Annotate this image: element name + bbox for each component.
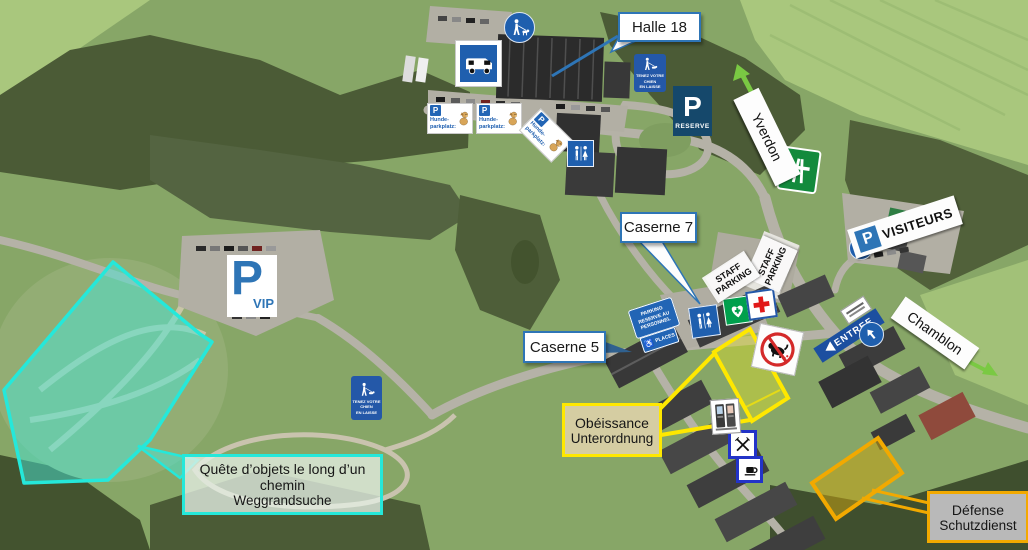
first-aid-sign (745, 288, 778, 321)
up-arrow-icon (860, 323, 884, 347)
dog-cartoon-icon (507, 105, 519, 132)
label-quete-dobjets: Quête d’objets le long d’un chemin Weggr… (182, 454, 383, 515)
callout-halle-18: Halle 18 (618, 12, 701, 42)
wc-sign-2 (688, 304, 721, 339)
restaurant-sign (728, 430, 757, 459)
coffee-cup-icon (741, 461, 759, 479)
callout-caserne-7: Caserne 7 (620, 212, 697, 243)
parking-reserve-sign: P RESERVE (673, 86, 712, 136)
vending-machine-icon (712, 400, 739, 433)
parking-vip-sign: P VIP (227, 255, 277, 317)
quete-area-highlight (4, 262, 212, 483)
map-annotations (0, 0, 1028, 550)
hundeparkplatz-sign-2: P Hunde-parkplatz: (476, 103, 522, 134)
dog-cartoon-icon (458, 105, 470, 132)
person-with-dog-icon (509, 17, 531, 39)
left-arrow-icon (822, 341, 836, 355)
caserne7-leader (636, 238, 700, 304)
toilets-icon (693, 310, 717, 334)
halle18-leader (552, 36, 618, 76)
vending-machines-sign (710, 398, 741, 435)
label-defense: Défense Schutzdienst (927, 491, 1028, 543)
parking-p-icon: P (479, 105, 490, 116)
camper-parking-sign (455, 40, 502, 87)
cafe-sign (736, 456, 763, 483)
no-dog-fouling-icon (753, 325, 802, 374)
parking-p-icon: P (430, 105, 441, 116)
person-with-dog-icon (358, 381, 376, 399)
event-site-map: P Hunde-parkplatz: P Hunde-parkplatz: P … (0, 0, 1028, 550)
dog-walking-roundel-sign (504, 12, 535, 43)
no-dog-fouling-sign (751, 323, 804, 376)
fork-knife-icon (733, 435, 752, 454)
toilets-icon (571, 144, 591, 164)
wheelchair-icon: ♿ (643, 338, 655, 350)
label-obeissance: Obéissance Unterordnung (562, 403, 662, 457)
wc-sign-1 (567, 140, 594, 167)
red-cross-icon (751, 294, 772, 315)
leash-sign-2: TENEZ VOTRE CHIENEN LAISSE (351, 376, 382, 420)
parking-p-icon: P (854, 225, 882, 253)
camper-van-icon (463, 51, 495, 77)
leash-sign-1: TENEZ VOTRE CHIENEN LAISSE (634, 54, 666, 92)
person-with-dog-icon (641, 56, 659, 73)
defense-area-highlight (812, 438, 902, 519)
callout-caserne-5: Caserne 5 (523, 331, 606, 363)
hundeparkplatz-sign-1: P Hunde-parkplatz: (427, 103, 473, 134)
